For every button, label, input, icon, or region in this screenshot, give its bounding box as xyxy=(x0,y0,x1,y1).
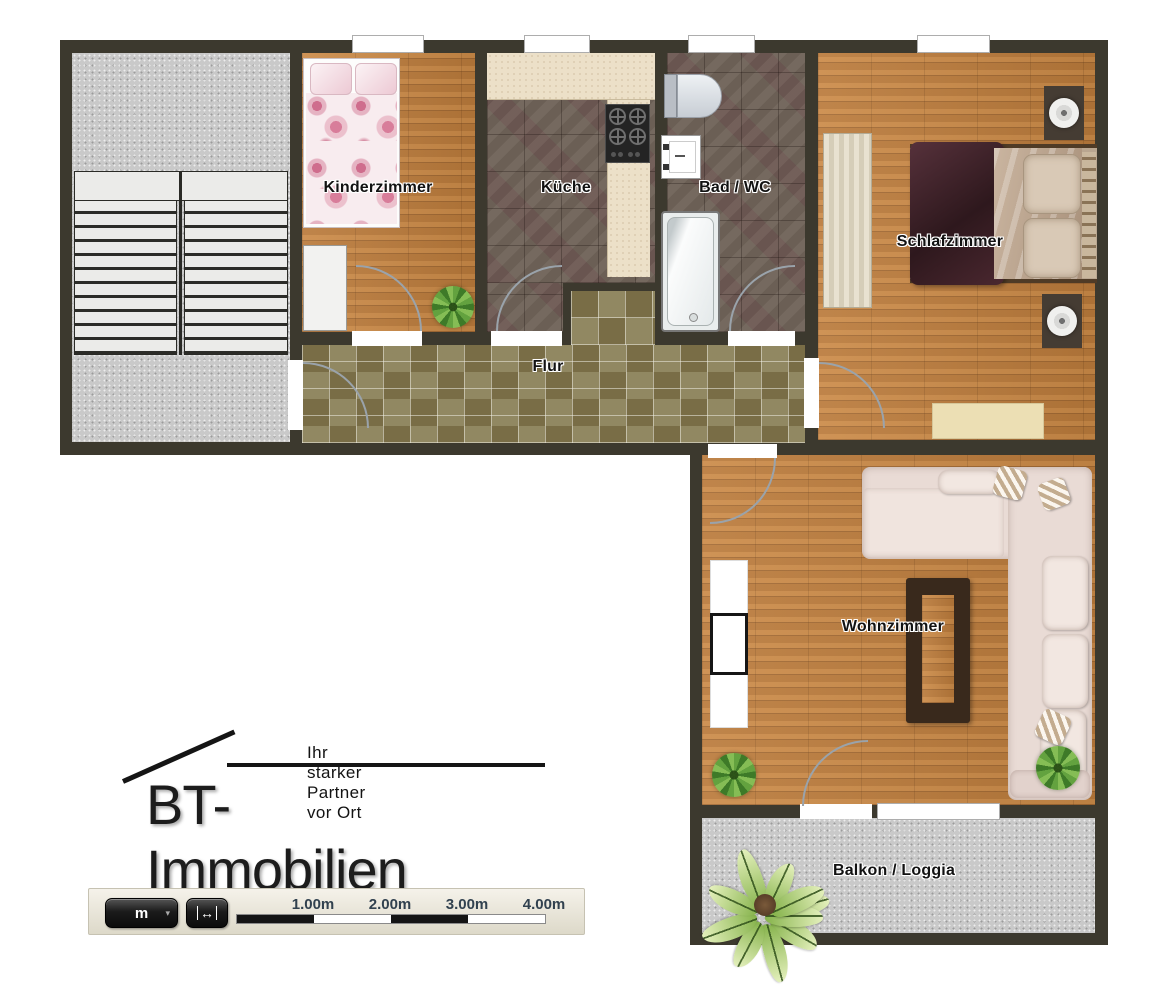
lamp xyxy=(1047,306,1077,336)
door-schlafzimmer xyxy=(804,358,819,428)
stove-burner xyxy=(609,108,626,125)
door-bad xyxy=(728,331,795,346)
room-label-bad: Bad / WC xyxy=(699,179,771,197)
nightstand-top xyxy=(1044,86,1084,140)
stove-knob xyxy=(635,152,640,157)
sink-tap-handle xyxy=(675,155,685,157)
bathtub-inner xyxy=(667,217,714,326)
stove-knob xyxy=(611,152,616,157)
sink xyxy=(661,135,701,179)
scale-segment xyxy=(391,915,468,923)
scale-tick-1: 1.00m xyxy=(292,896,335,913)
room-label-schlafzimmer: Schlafzimmer xyxy=(897,233,1003,251)
child-bed-pillow-left xyxy=(310,63,352,95)
unit-dropdown-value: m xyxy=(135,905,148,922)
sink-basin xyxy=(669,141,696,173)
scale-segment xyxy=(468,915,545,923)
chevron-down-icon: ▾ xyxy=(165,908,170,919)
plant-wohnzimmer-left xyxy=(712,753,756,797)
plant-center xyxy=(754,894,776,916)
bed-pillow xyxy=(1023,218,1081,278)
measure-icon: ↔ xyxy=(197,906,217,920)
lamp xyxy=(1049,98,1079,128)
toilet-tank xyxy=(664,74,677,118)
bathtub xyxy=(661,211,720,332)
wardrobe xyxy=(823,133,872,308)
stove-burner xyxy=(629,108,646,125)
room-label-kueche: Küche xyxy=(541,179,591,197)
flur-notch xyxy=(571,291,655,345)
door-entry xyxy=(288,360,303,430)
child-dresser xyxy=(303,245,347,331)
measure-button[interactable]: ↔ xyxy=(186,898,228,928)
scale-ruler xyxy=(236,914,546,924)
unit-dropdown[interactable]: m ▾ xyxy=(105,898,178,928)
door-kueche xyxy=(491,331,562,346)
room-label-wohnzimmer: Wohnzimmer xyxy=(842,618,944,636)
double-bed xyxy=(910,144,1097,283)
child-bed-blanket xyxy=(306,93,397,224)
shelf-cabinet xyxy=(710,560,748,728)
sink-faucet xyxy=(663,164,669,170)
bed-headboard xyxy=(1082,152,1096,278)
stove-knob xyxy=(628,152,633,157)
shelf-cabinet-tv-box xyxy=(710,613,748,675)
stove xyxy=(605,104,650,163)
room-label-flur: Flur xyxy=(532,358,563,376)
coffee-table-opening xyxy=(922,595,954,703)
toilet-bowl xyxy=(677,74,722,118)
sofa-back-cushion xyxy=(938,470,1000,494)
logo-brand: BT-Immobilien xyxy=(146,772,407,902)
sofa-cushion xyxy=(1042,634,1088,708)
bed-blanket-dark xyxy=(910,142,1004,285)
window-schlafzimmer xyxy=(917,35,990,53)
floorplan-page: Kinderzimmer Küche Bad / WC Schlafzimmer… xyxy=(0,0,1164,993)
window-kueche xyxy=(524,35,590,53)
stairs xyxy=(74,171,288,355)
bed-pillow xyxy=(1023,154,1081,214)
child-bed-pillow-right xyxy=(355,63,397,95)
stairs-landing-divider xyxy=(179,171,182,201)
toilet xyxy=(664,74,722,118)
plant-wohnzimmer-right xyxy=(1036,746,1080,790)
kitchen-counter-top xyxy=(487,53,655,100)
child-bed xyxy=(303,58,400,228)
sofa-cushion xyxy=(1042,556,1088,630)
window-bad xyxy=(688,35,755,53)
bedroom-rug xyxy=(932,403,1044,439)
sofa-chaise xyxy=(864,488,1004,557)
coffee-table xyxy=(906,578,970,723)
door-wohnzimmer xyxy=(708,444,777,458)
scale-tick-3: 3.00m xyxy=(446,896,489,913)
sink-faucet xyxy=(663,144,669,150)
scale-tick-4: 4.00m xyxy=(523,896,566,913)
scale-segment xyxy=(314,915,391,923)
stove-burner xyxy=(609,128,626,145)
logo-underline xyxy=(227,763,545,767)
plant-kinderzimmer xyxy=(432,286,474,328)
window-kinderzimmer xyxy=(352,35,424,53)
scale-tick-2: 2.00m xyxy=(369,896,412,913)
door-kinderzimmer xyxy=(352,331,422,346)
scale-segment xyxy=(237,915,314,923)
bathtub-drain xyxy=(689,313,698,322)
room-label-balkon: Balkon / Loggia xyxy=(833,862,955,880)
plant-balkon xyxy=(705,845,825,965)
stove-knob xyxy=(618,152,623,157)
stove-burner xyxy=(629,128,646,145)
room-label-kinderzimmer: Kinderzimmer xyxy=(323,179,432,197)
nightstand-bottom xyxy=(1042,294,1082,348)
scale-bar-panel: m ▾ ↔ 1.00m 2.00m 3.00m 4.00m xyxy=(88,888,585,935)
door-balkon xyxy=(800,804,872,819)
window-balkon xyxy=(877,803,1000,820)
